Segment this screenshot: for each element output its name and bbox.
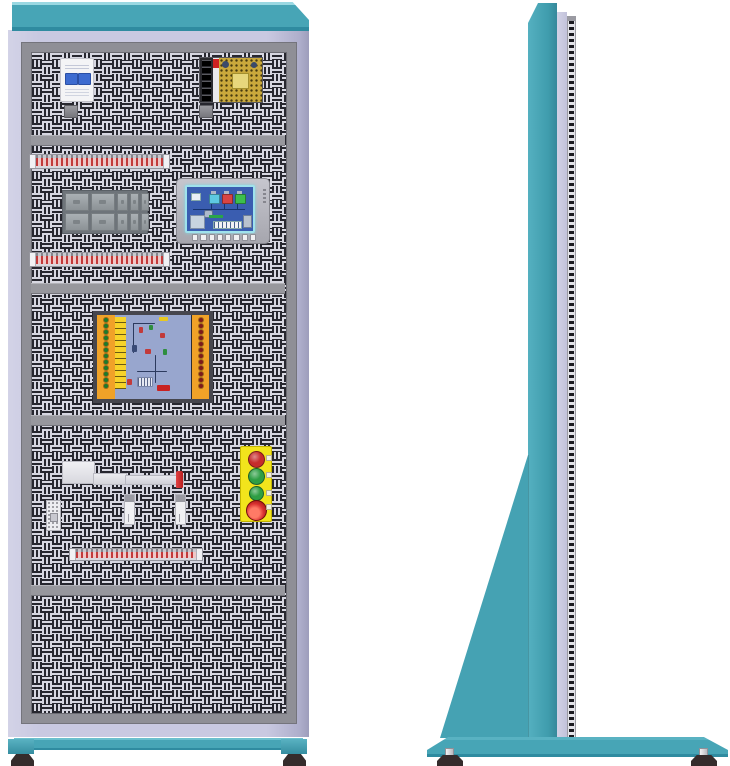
pcb-component (149, 325, 153, 330)
power-supply (199, 57, 263, 103)
pcb-red-label (157, 385, 170, 391)
hmi-function-key[interactable] (200, 234, 206, 241)
module-port (144, 200, 146, 204)
module-port (73, 200, 81, 204)
pcb-yellow-tag (159, 317, 168, 321)
tank-indicator-cyan[interactable] (209, 194, 220, 204)
board-terminal-dot[interactable] (104, 354, 108, 358)
hmi-graphic-box (191, 193, 201, 201)
board-right-dots[interactable] (194, 317, 207, 389)
board-terminal-dot[interactable] (104, 330, 108, 334)
panel-divider (31, 415, 285, 426)
side-door-fin (567, 16, 576, 741)
side-base-plate (427, 737, 728, 757)
sensor-cap (176, 495, 185, 502)
panel-divider (31, 135, 285, 146)
breaker-toggle[interactable] (78, 73, 91, 85)
sensor-unit[interactable] (175, 494, 186, 525)
module-port (99, 200, 107, 204)
din-terminal-strip (29, 252, 170, 267)
hmi-bargraph (213, 221, 242, 229)
board-terminal-dot[interactable] (199, 324, 203, 328)
board-terminal-dot[interactable] (104, 360, 108, 364)
hmi-model-marking (263, 187, 266, 203)
board-terminal-dot[interactable] (199, 378, 203, 382)
module-port (133, 220, 135, 224)
board-terminal-dot[interactable] (199, 384, 203, 388)
board-terminal-dot[interactable] (104, 372, 108, 376)
board-terminal-dot[interactable] (199, 318, 203, 322)
panel-divider (31, 283, 285, 294)
small-pcb-chip (50, 513, 58, 522)
board-terminal-dot[interactable] (199, 372, 203, 376)
relay-module-cell[interactable] (117, 213, 128, 231)
psu-transformer (232, 73, 249, 89)
board-terminal-dot[interactable] (104, 348, 108, 352)
din-terminal-ticks (76, 552, 196, 558)
front-view (0, 0, 320, 766)
red-push-button[interactable] (248, 451, 265, 468)
pcb-trace (133, 323, 155, 324)
board-terminal-dot[interactable] (199, 330, 203, 334)
psu-capacitor (222, 61, 229, 68)
din-terminal-ticks (36, 158, 163, 166)
io-training-board (93, 311, 213, 403)
hmi-function-key[interactable] (225, 234, 231, 241)
pcb-component (160, 333, 165, 338)
psu-terminal[interactable] (202, 81, 211, 87)
hmi-panel[interactable] (176, 178, 270, 244)
tank-indicator-red[interactable] (222, 194, 233, 204)
button-label-tab (266, 455, 272, 461)
sensor-slot (128, 514, 129, 522)
relay-module-block (62, 190, 148, 234)
equipment-illustration (0, 0, 730, 766)
relay-module-cell[interactable] (117, 193, 128, 211)
relay-module-cell[interactable] (91, 213, 115, 231)
board-terminal-dot[interactable] (199, 348, 203, 352)
panel-divider (31, 585, 285, 596)
board-terminal-dot[interactable] (199, 354, 203, 358)
hmi-faceplate (190, 215, 205, 229)
board-terminal-dot[interactable] (199, 360, 203, 364)
hmi-function-key[interactable] (217, 234, 223, 241)
pcb-trace (137, 371, 167, 372)
module-port (73, 220, 81, 224)
emergency-stop-button[interactable] (246, 500, 267, 521)
board-terminal-dot[interactable] (104, 342, 108, 346)
relay-module-cell[interactable] (65, 213, 89, 231)
pcb-component (145, 349, 151, 354)
psu-terminal[interactable] (202, 95, 211, 101)
board-terminal-dot[interactable] (104, 378, 108, 382)
psu-terminal[interactable] (202, 67, 211, 73)
relay-module-cell[interactable] (141, 193, 149, 211)
din-terminal-ticks (36, 256, 163, 264)
button-label-tab (266, 504, 272, 510)
breaker-toggle[interactable] (65, 73, 78, 85)
pcb-component (132, 345, 137, 352)
pcb-component (163, 349, 167, 355)
switch-handle-red-tip[interactable] (176, 471, 183, 488)
module-port (99, 220, 107, 224)
relay-module-cell[interactable] (65, 193, 89, 211)
small-pcb-module (46, 500, 61, 531)
hmi-function-key[interactable] (242, 234, 248, 241)
relay-module-cell[interactable] (130, 193, 139, 211)
hmi-function-key[interactable] (209, 234, 215, 241)
psu-terminal-strip[interactable] (200, 58, 213, 102)
board-label-strip-yellow (115, 317, 126, 389)
button-label-tab (266, 490, 272, 496)
fin-stripes (569, 21, 574, 739)
circuit-breaker[interactable] (60, 58, 94, 102)
tank-indicator-green[interactable] (235, 194, 246, 204)
psu-pcb (219, 58, 262, 102)
mounting-screw-block (199, 105, 213, 118)
board-terminal-dot[interactable] (104, 318, 108, 322)
side-column (528, 3, 557, 740)
board-terminal-dot[interactable] (104, 324, 108, 328)
front-base-bar (14, 738, 303, 750)
breaker-label-lines (65, 63, 89, 69)
relay-module-cell[interactable] (130, 213, 139, 231)
mounting-screw-block (64, 105, 78, 118)
module-port (144, 220, 146, 224)
pcb-trace (155, 355, 156, 383)
side-frame-edge (557, 12, 567, 741)
hmi-status-bar (209, 215, 223, 218)
front-base-end-cap (8, 739, 34, 754)
pcb-component (127, 379, 132, 385)
green-push-button-small[interactable] (249, 486, 264, 501)
hmi-function-key[interactable] (250, 234, 256, 241)
button-station (240, 446, 272, 522)
board-terminal-dot[interactable] (104, 336, 108, 340)
psu-terminal[interactable] (202, 88, 211, 94)
button-label-tab (266, 472, 272, 478)
fin-top-cap (568, 16, 575, 21)
gusset-support (440, 455, 528, 738)
leveling-foot (283, 754, 306, 766)
psu-terminal[interactable] (202, 74, 211, 80)
sensor-cap (125, 495, 134, 502)
board-terminal-dot[interactable] (104, 384, 108, 388)
psu-capacitor (251, 62, 257, 68)
pcb-component (139, 327, 143, 333)
hmi-function-keys[interactable] (192, 234, 256, 240)
board-left-dots[interactable] (100, 317, 112, 389)
switch-handle-rail (93, 473, 127, 485)
front-base-end-cap (281, 739, 307, 754)
side-view (400, 0, 730, 766)
module-port (121, 220, 124, 224)
pcb-component (137, 377, 153, 387)
relay-module-cell[interactable] (91, 193, 115, 211)
hmi-function-key[interactable] (192, 234, 198, 241)
cabinet-top-cap (12, 2, 309, 31)
psu-terminal[interactable] (202, 60, 211, 66)
board-terminal-dot[interactable] (199, 336, 203, 340)
side-column-seam (528, 455, 529, 738)
sensor-unit[interactable] (124, 494, 135, 525)
hmi-vessel-symbol (243, 215, 252, 228)
switch-handle-block[interactable] (62, 461, 95, 484)
board-terminal-dot[interactable] (104, 366, 108, 370)
hmi-screen[interactable] (185, 185, 255, 233)
relay-module-cell[interactable] (141, 213, 149, 231)
breaker-label-lines (65, 88, 89, 96)
sensor-slot (179, 514, 180, 522)
board-terminal-dot[interactable] (199, 366, 203, 370)
din-terminal-strip (69, 548, 203, 561)
module-port (121, 200, 124, 204)
din-terminal-strip (29, 154, 170, 169)
hmi-function-key[interactable] (233, 234, 239, 241)
module-port (133, 200, 135, 204)
board-terminal-dot[interactable] (199, 342, 203, 346)
green-push-button[interactable] (248, 468, 265, 485)
leveling-foot (11, 754, 34, 766)
